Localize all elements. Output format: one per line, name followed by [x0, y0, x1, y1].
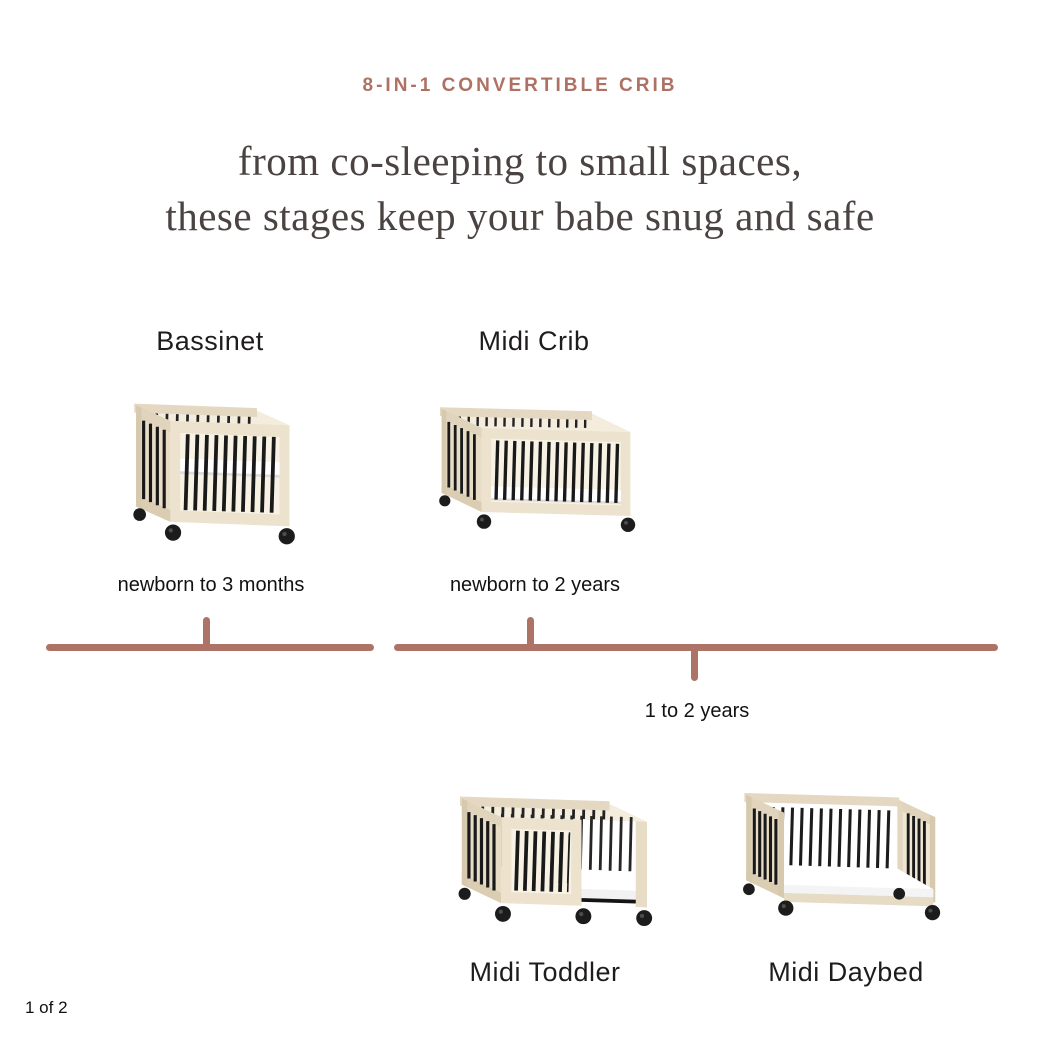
pagination-indicator: 1 of 2: [25, 998, 68, 1018]
bassinet-illustration: [118, 372, 303, 548]
stage-name-midi-toddler: Midi Toddler: [395, 957, 695, 988]
age-range-toddler-daybed: 1 to 2 years: [547, 700, 847, 723]
midi-crib-illustration: [424, 380, 648, 540]
stage-name-midi-daybed: Midi Daybed: [696, 957, 996, 988]
headline-line-1: from co-sleeping to small spaces,: [0, 134, 1040, 189]
crib-stages-slide: 8-IN-1 CONVERTIBLE CRIB from co-sleeping…: [0, 0, 1040, 1040]
stage-name-midi-crib: Midi Crib: [384, 326, 684, 357]
age-range-midi-crib: newborn to 2 years: [385, 574, 685, 597]
age-range-bassinet: newborn to 3 months: [61, 574, 361, 597]
headline: from co-sleeping to small spaces, these …: [0, 134, 1040, 244]
timeline-tick-midi-crib: [527, 617, 534, 651]
timeline-tick-toddler-daybed: [691, 646, 698, 681]
headline-line-2: these stages keep your babe snug and saf…: [0, 189, 1040, 244]
midi-toddler-illustration: [443, 761, 663, 934]
eyebrow-label: 8-IN-1 CONVERTIBLE CRIB: [0, 75, 1040, 97]
timeline-tick-bassinet: [203, 617, 210, 651]
timeline-segment-bassinet: [46, 644, 374, 651]
midi-daybed-illustration: [730, 763, 946, 930]
stage-name-bassinet: Bassinet: [60, 326, 360, 357]
